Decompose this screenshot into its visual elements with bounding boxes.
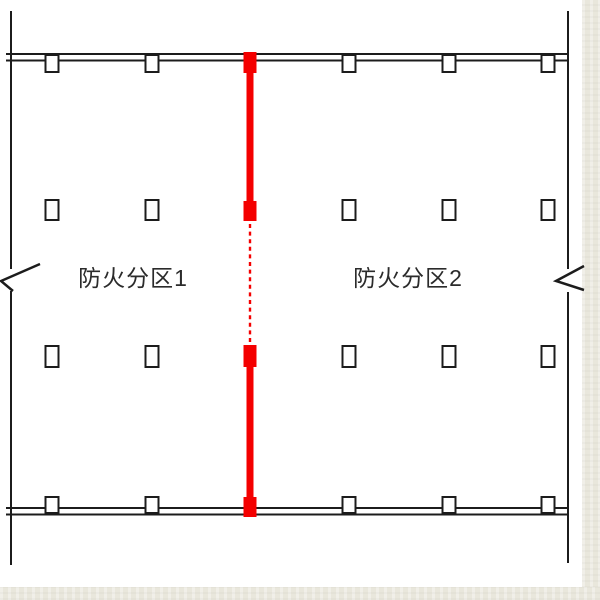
column (343, 200, 356, 220)
fire-wall-block-bottom (244, 497, 257, 517)
zone1-label: 防火分区1 (78, 259, 188, 293)
fire-wall-block-mid-lower (244, 345, 257, 367)
column (343, 346, 356, 367)
column (443, 200, 456, 220)
column (343, 55, 356, 72)
column-row-lower (46, 346, 555, 367)
right-break-line (556, 11, 584, 563)
fire-wall-solid-upper (247, 72, 254, 201)
top-wall-columns (46, 55, 555, 72)
column (542, 55, 555, 72)
column (542, 497, 555, 513)
fire-wall-block-mid-upper (244, 201, 257, 221)
break-zigzag-icon (1, 264, 40, 291)
column (542, 200, 555, 220)
plan-drawing (0, 0, 600, 600)
column (443, 497, 456, 513)
column (46, 55, 59, 72)
fire-separation-wall (244, 52, 257, 517)
column (443, 346, 456, 367)
fire-wall-block-top (244, 52, 257, 73)
floor-plan-canvas: 防火分区1 防火分区2 (0, 0, 600, 600)
column (146, 497, 159, 513)
column (343, 497, 356, 513)
fire-wall-solid-lower (247, 366, 254, 498)
zone2-label: 防火分区2 (353, 259, 463, 293)
column (542, 346, 555, 367)
break-zigzag-icon (556, 266, 584, 290)
column (146, 200, 159, 220)
column (443, 55, 456, 72)
column (46, 497, 59, 513)
column (146, 55, 159, 72)
column-row-upper (46, 200, 555, 220)
column (46, 200, 59, 220)
column (146, 346, 159, 367)
bottom-wall-columns (46, 497, 555, 513)
bottom-wall (6, 508, 567, 515)
top-wall (6, 54, 567, 61)
column (46, 346, 59, 367)
left-break-line (1, 11, 40, 565)
